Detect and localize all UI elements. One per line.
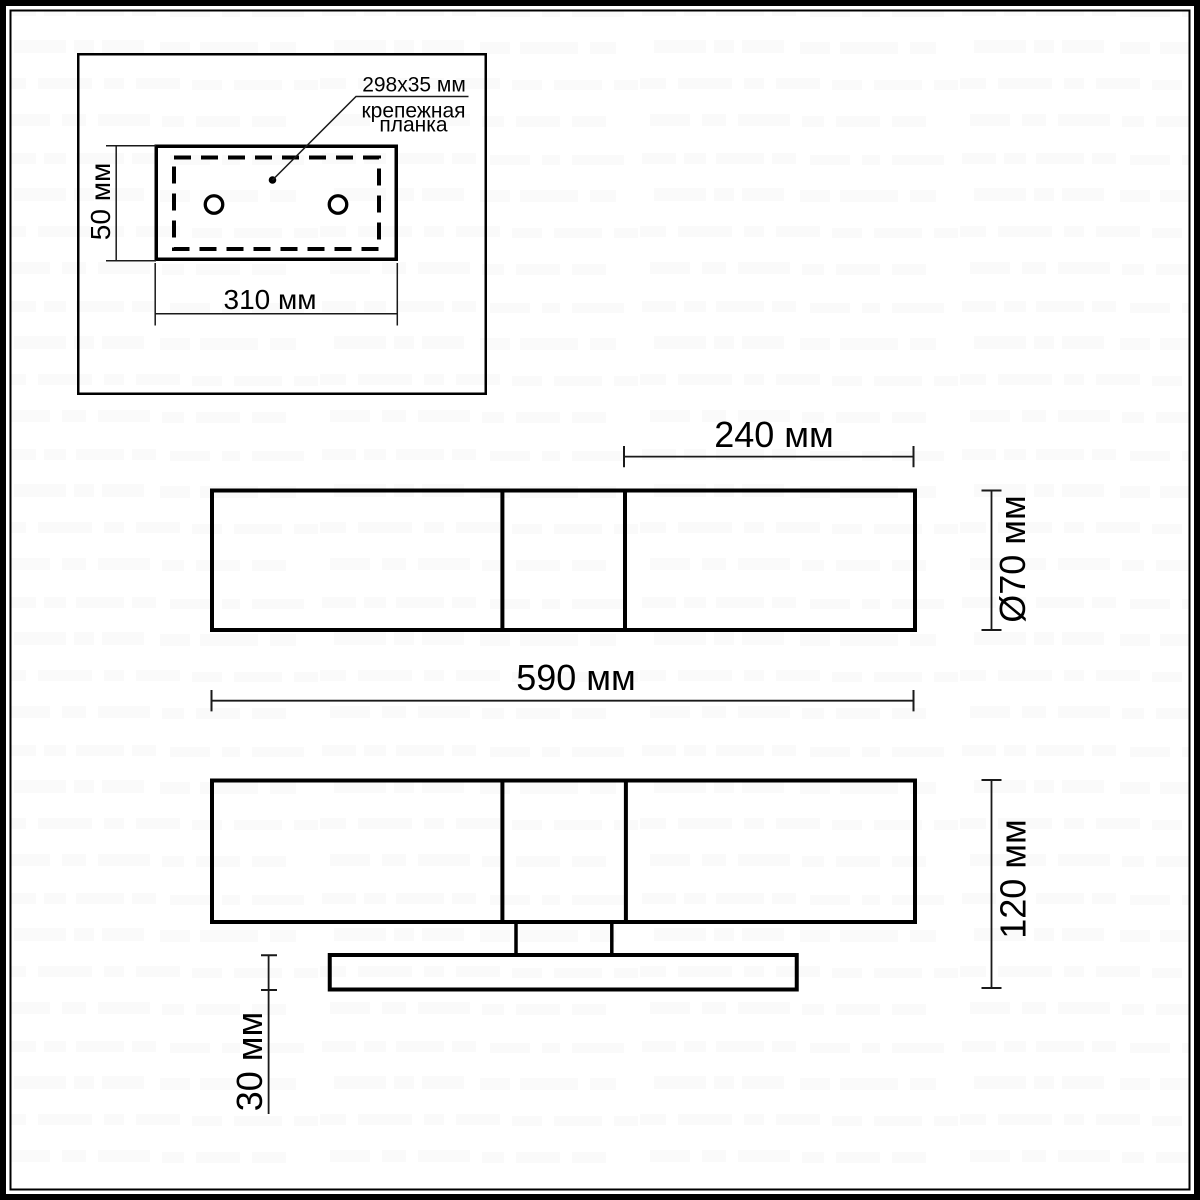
svg-text:298x35 мм: 298x35 мм <box>362 74 466 97</box>
svg-text:240 мм: 240 мм <box>714 414 834 455</box>
svg-text:планка: планка <box>379 114 448 137</box>
svg-text:30 мм: 30 мм <box>229 1012 270 1112</box>
svg-text:120 мм: 120 мм <box>993 819 1034 939</box>
svg-text:310 мм: 310 мм <box>224 284 317 315</box>
svg-text:Ø70 мм: Ø70 мм <box>992 495 1033 623</box>
svg-text:50 мм: 50 мм <box>85 163 116 240</box>
svg-text:590 мм: 590 мм <box>516 657 636 698</box>
